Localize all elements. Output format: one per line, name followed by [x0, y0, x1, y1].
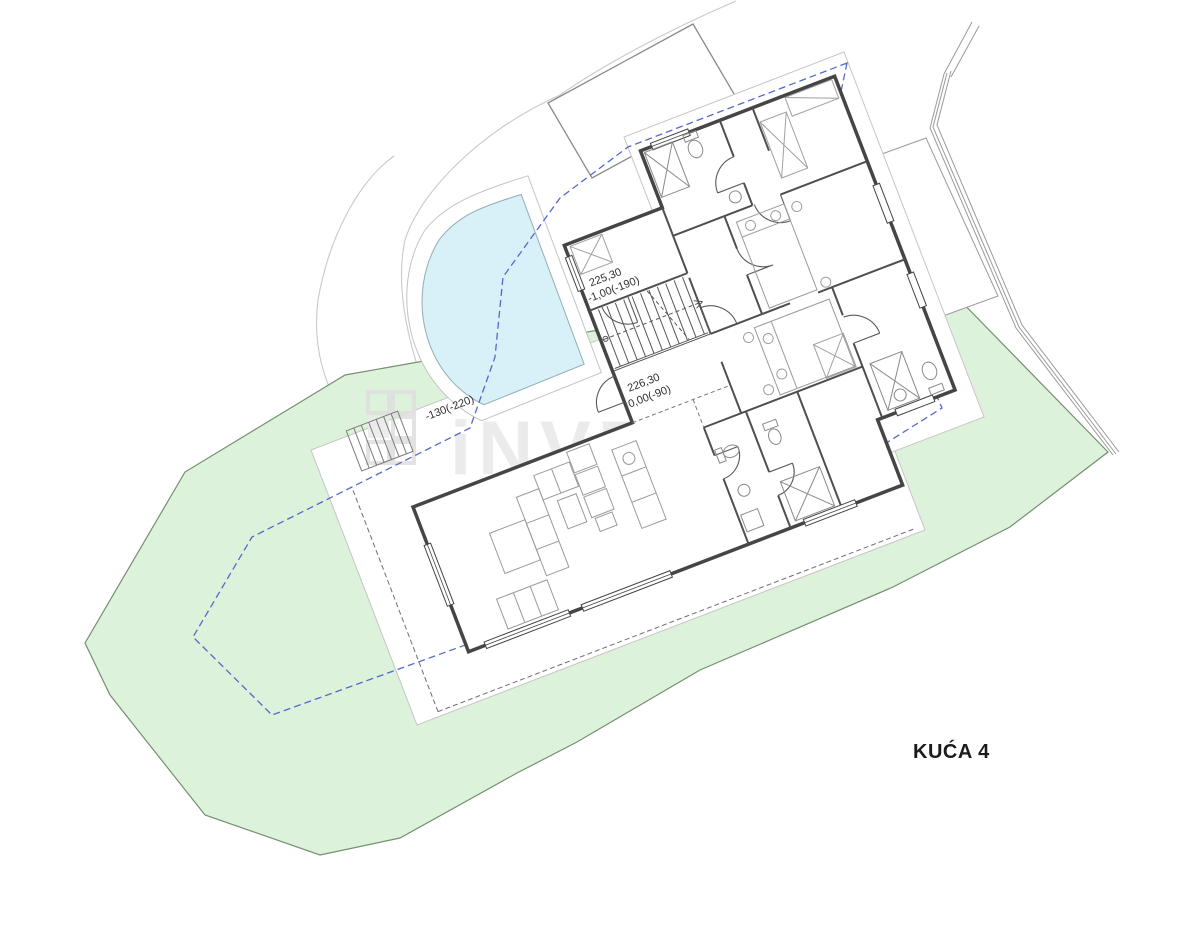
road-spur: [951, 26, 979, 77]
site-plan-page: iNVESTA: [0, 0, 1200, 920]
house-title: KUĆA 4: [913, 739, 990, 763]
road-spur: [944, 22, 972, 74]
site-plan-drawing: iNVESTA: [0, 0, 1200, 920]
